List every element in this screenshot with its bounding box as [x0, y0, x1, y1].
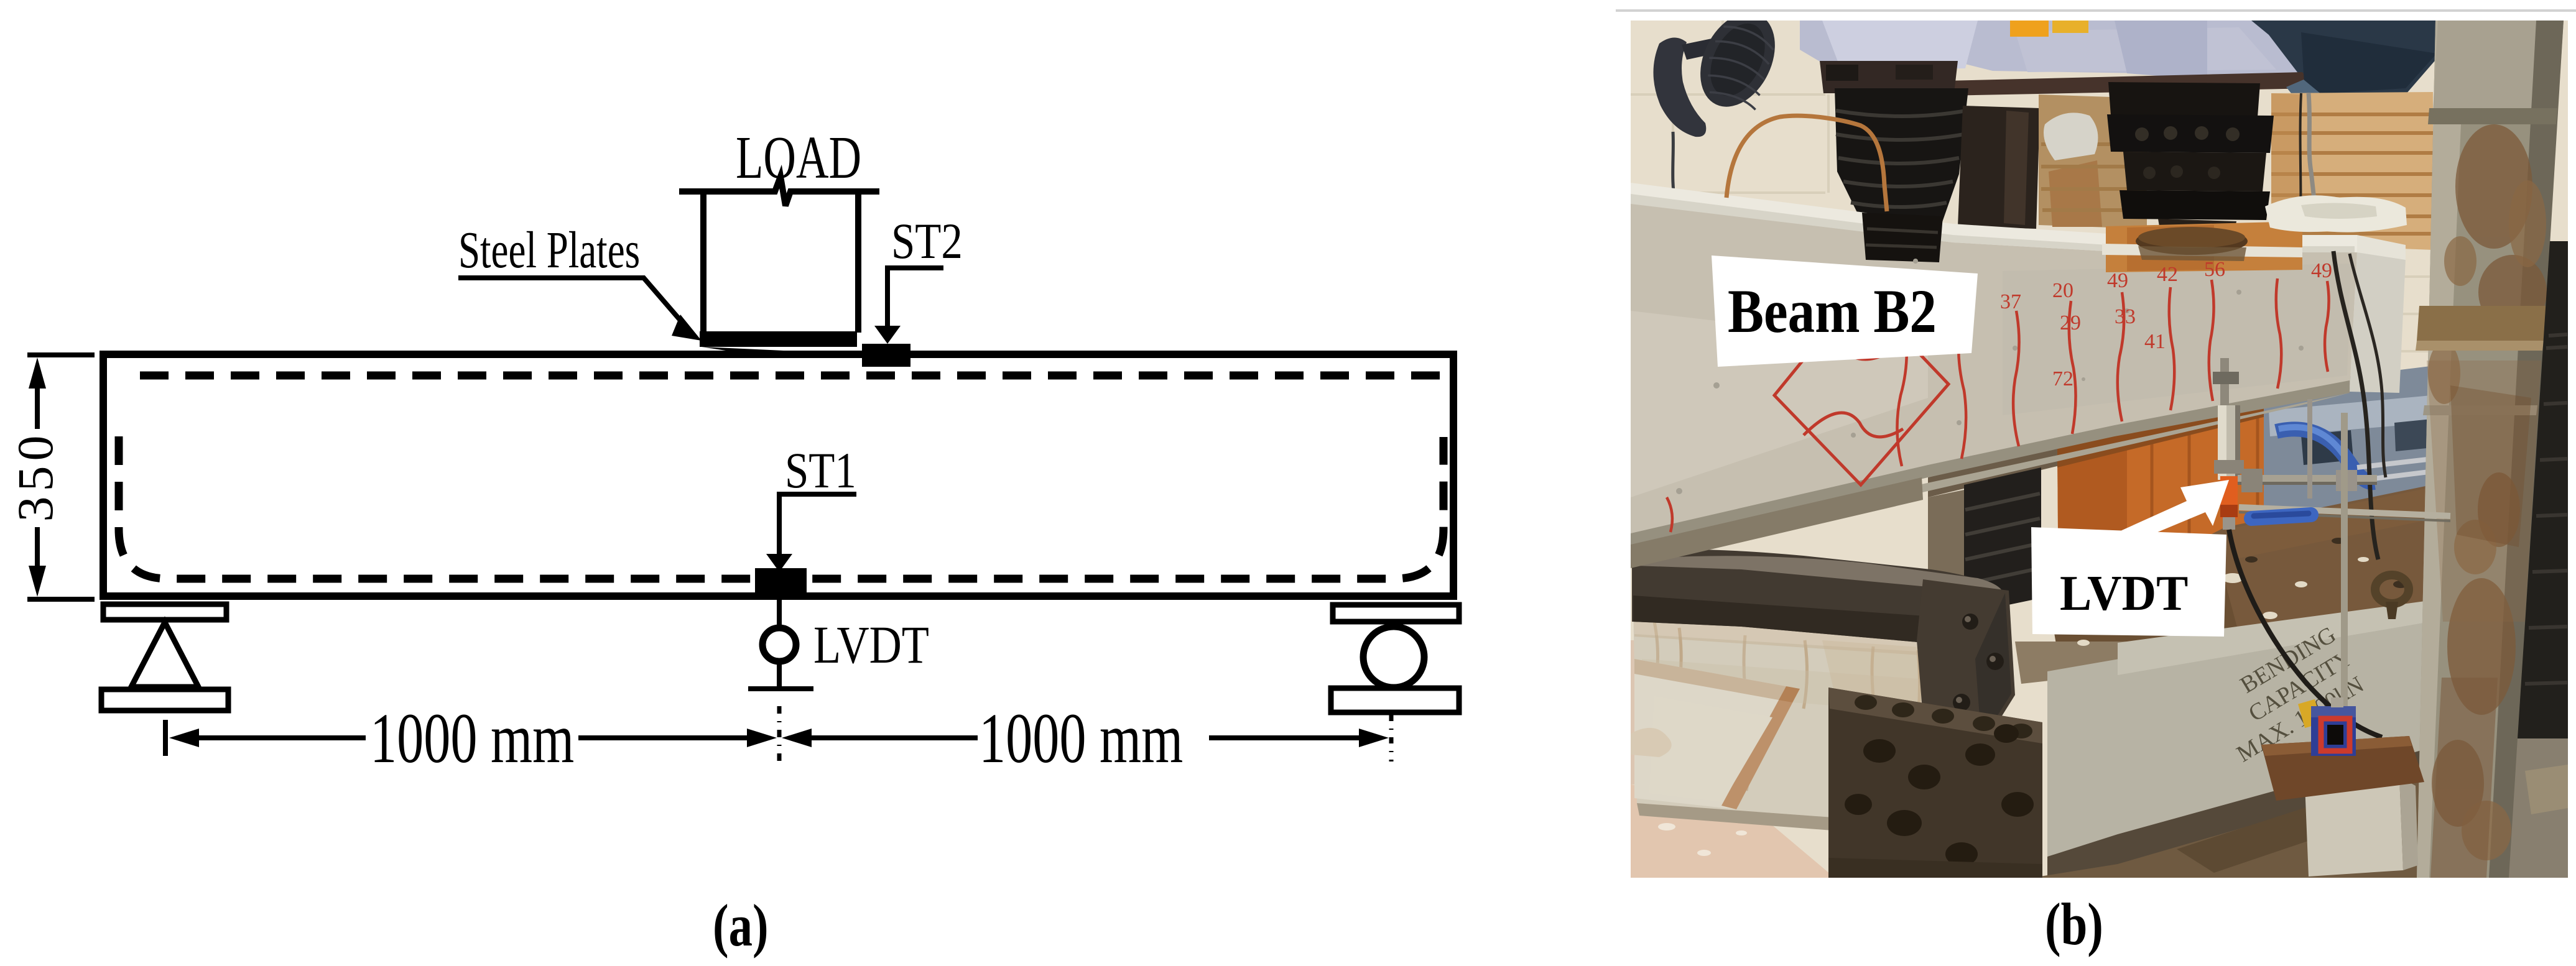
- svg-text:33: 33: [2115, 305, 2136, 328]
- svg-text:1000 mm: 1000 mm: [370, 698, 574, 778]
- svg-text:49: 49: [2311, 259, 2332, 282]
- svg-text:42: 42: [2157, 263, 2178, 286]
- svg-text:350: 350: [7, 431, 63, 522]
- svg-text:(a): (a): [713, 893, 769, 959]
- svg-text:Beam B2: Beam B2: [1728, 277, 1937, 346]
- svg-text:LOAD: LOAD: [736, 124, 861, 191]
- svg-text:20: 20: [2052, 279, 2073, 302]
- svg-text:49: 49: [2107, 269, 2128, 292]
- svg-text:72: 72: [2052, 367, 2073, 390]
- svg-text:LVDT: LVDT: [813, 615, 929, 674]
- svg-text:37: 37: [2000, 290, 2021, 313]
- svg-text:ST1: ST1: [785, 443, 856, 499]
- svg-text:56: 56: [2204, 258, 2225, 281]
- svg-text:41: 41: [2144, 330, 2166, 353]
- svg-text:ST2: ST2: [891, 214, 963, 270]
- svg-text:29: 29: [2060, 311, 2081, 334]
- svg-text:LVDT: LVDT: [2060, 566, 2188, 621]
- svg-text:Steel Plates: Steel Plates: [458, 221, 640, 279]
- svg-text:1000 mm: 1000 mm: [979, 698, 1183, 778]
- svg-text:(b): (b): [2045, 891, 2103, 957]
